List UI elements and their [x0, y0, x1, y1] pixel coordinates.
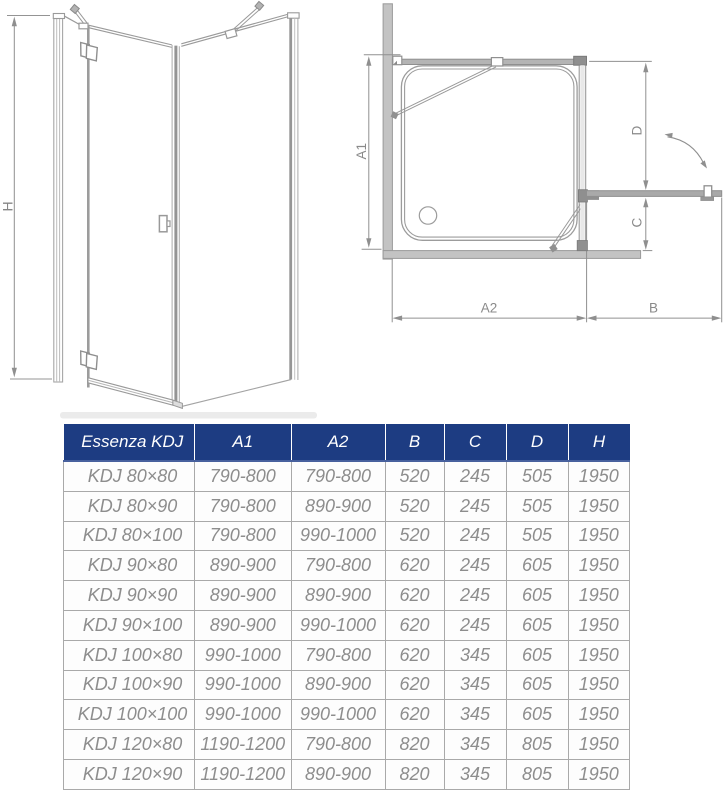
svg-text:A1: A1	[354, 143, 369, 160]
svg-text:C: C	[630, 218, 645, 228]
svg-text:B: B	[649, 301, 658, 316]
svg-text:H: H	[0, 201, 16, 211]
svg-text:A2: A2	[481, 301, 498, 316]
svg-text:D: D	[629, 126, 644, 136]
